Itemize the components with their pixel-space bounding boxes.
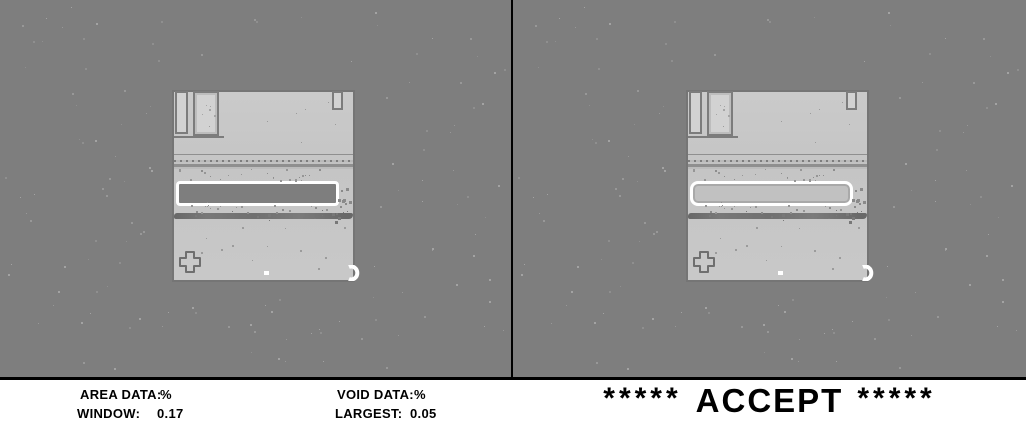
noise-speckle — [467, 196, 469, 198]
noise-speckle — [33, 41, 35, 43]
noise-speckle — [911, 335, 912, 336]
noise-speckle — [432, 250, 433, 251]
noise-speckle — [207, 206, 208, 207]
noise-speckle — [788, 205, 790, 207]
noise-speckle — [547, 194, 548, 195]
noise-speckle — [828, 218, 829, 219]
noise-speckle — [53, 305, 54, 306]
noise-speckle — [620, 286, 621, 287]
noise-speckle — [852, 217, 855, 220]
noise-speckle — [855, 190, 857, 192]
noise-speckle — [983, 38, 985, 40]
noise-speckle — [986, 107, 988, 109]
noise-speckle — [276, 212, 278, 214]
noise-speckle — [860, 188, 863, 191]
noise-speckle — [299, 177, 300, 178]
noise-speckle — [642, 327, 644, 329]
noise-speckle — [210, 176, 211, 177]
noise-speckle — [750, 207, 751, 208]
noise-speckle — [457, 204, 458, 205]
noise-speckle — [765, 169, 766, 170]
noise-speckle — [671, 60, 673, 62]
noise-speckle — [719, 218, 720, 219]
noise-speckle — [521, 274, 523, 276]
noise-speckle — [571, 291, 573, 293]
noise-speckle — [796, 209, 798, 211]
noise-speckle — [305, 109, 306, 110]
noise-speckle — [285, 228, 286, 229]
noise-speckle — [742, 175, 743, 176]
noise-speckle — [503, 330, 504, 331]
noise-speckle — [285, 361, 286, 362]
noise-speckle — [810, 113, 811, 114]
noise-speckle — [720, 238, 721, 239]
noise-speckle — [693, 169, 695, 171]
noise-speckle — [20, 197, 21, 198]
noise-speckle — [1002, 301, 1004, 303]
noise-speckle — [1017, 69, 1019, 71]
noise-speckle — [220, 179, 221, 180]
largest-label: LARGEST: — [335, 406, 402, 421]
noise-speckle — [722, 205, 723, 206]
noise-speckle — [209, 126, 210, 127]
noise-speckle — [829, 207, 831, 209]
noise-speckle — [335, 221, 338, 224]
result-stars-right: ***** — [857, 389, 935, 409]
noise-speckle — [85, 68, 87, 70]
noise-speckle — [423, 149, 425, 151]
noise-speckle — [485, 217, 486, 218]
noise-speckle — [303, 217, 305, 219]
noise-speckle — [377, 25, 378, 26]
noise-speckle — [79, 139, 80, 140]
noise-speckle — [205, 218, 206, 219]
noise-speckle — [829, 218, 830, 219]
noise-speckle — [799, 339, 800, 340]
noise-speckle — [939, 130, 941, 132]
noise-speckle — [936, 149, 938, 151]
noise-speckle — [256, 21, 258, 23]
noise-speckle — [58, 291, 60, 293]
component-groove-band — [688, 154, 867, 169]
noise-speckle — [470, 38, 472, 40]
noise-speckle — [615, 188, 617, 190]
noise-speckle — [460, 82, 462, 84]
noise-speckle — [969, 284, 971, 286]
noise-speckle — [208, 205, 209, 206]
noise-speckle — [790, 212, 792, 214]
noise-speckle — [129, 327, 131, 329]
noise-speckle — [386, 97, 388, 99]
noise-speckle — [398, 335, 399, 336]
noise-speckle — [453, 170, 454, 171]
noise-speckle — [874, 338, 876, 340]
area-data-value: % — [160, 387, 172, 402]
noise-speckle — [1011, 185, 1013, 187]
noise-speckle — [769, 21, 771, 23]
noise-speckle — [825, 206, 826, 207]
noise-speckle — [269, 220, 270, 221]
noise-speckle — [473, 107, 475, 109]
noise-speckle — [477, 56, 478, 57]
noise-speckle — [162, 326, 163, 327]
noise-speckle — [899, 97, 901, 99]
noise-speckle — [228, 326, 230, 328]
noise-speckle — [781, 173, 782, 174]
noise-speckle — [124, 181, 125, 182]
noise-speckle — [341, 190, 343, 192]
noise-speckle — [803, 179, 805, 181]
noise-speckle — [296, 113, 297, 114]
noise-speckle — [286, 339, 287, 340]
noise-speckle — [823, 175, 824, 176]
noise-speckle — [794, 180, 796, 182]
noise-speckle — [214, 115, 216, 117]
noise-speckle — [755, 174, 756, 175]
noise-speckle — [81, 322, 83, 324]
noise-speckle — [850, 213, 852, 215]
noise-speckle — [83, 362, 85, 364]
noise-speckle — [190, 179, 192, 181]
noise-speckle — [322, 210, 323, 211]
noise-speckle — [119, 262, 121, 264]
noise-speckle — [8, 274, 10, 276]
noise-speckle — [392, 163, 394, 165]
noise-speckle — [781, 246, 782, 247]
panel-void-view — [513, 0, 1026, 377]
noise-speckle — [787, 178, 788, 179]
noise-speckle — [734, 206, 735, 207]
noise-speckle — [911, 190, 912, 191]
noise-speckle — [196, 211, 198, 213]
noise-speckle — [559, 18, 560, 19]
noise-speckle — [201, 212, 203, 214]
noise-speckle — [195, 215, 197, 217]
component-groove-band — [174, 154, 353, 169]
noise-speckle — [322, 215, 323, 216]
noise-speckle — [998, 217, 999, 218]
result-text: ACCEPT — [696, 382, 844, 420]
noise-speckle — [945, 250, 946, 251]
noise-speckle — [886, 297, 887, 298]
noise-speckle — [257, 216, 259, 218]
noise-speckle — [83, 38, 85, 40]
noise-speckle — [746, 211, 747, 212]
noise-speckle — [724, 106, 725, 107]
noise-speckle — [34, 194, 35, 195]
noise-speckle — [210, 208, 211, 209]
noise-speckle — [905, 163, 907, 165]
noise-speckle — [319, 169, 321, 171]
noise-speckle — [207, 202, 208, 203]
noise-speckle — [232, 245, 234, 247]
noise-speckle — [489, 279, 491, 281]
noise-speckle — [836, 210, 837, 211]
noise-speckle — [72, 93, 74, 95]
noise-speckle — [201, 252, 203, 254]
noise-speckle — [338, 217, 341, 220]
noise-speckle — [375, 12, 377, 14]
noise-speckle — [592, 139, 593, 140]
status-bar: AREA DATA: % WINDOW: 0.17 VOID DATA: % L… — [0, 377, 1026, 426]
noise-speckle — [766, 260, 767, 261]
noise-speckle — [663, 106, 664, 107]
noise-speckle — [115, 156, 116, 157]
noise-speckle — [716, 114, 717, 115]
noise-speckle — [504, 69, 506, 71]
noise-speckle — [566, 305, 567, 306]
noise-speckle — [598, 68, 600, 70]
noise-speckle — [335, 124, 336, 125]
noise-speckle — [64, 266, 66, 268]
component-pad-large — [707, 91, 733, 136]
noise-speckle — [603, 313, 604, 314]
noise-speckle — [854, 206, 856, 208]
noise-speckle — [342, 200, 345, 203]
noise-speckle — [852, 321, 853, 322]
noise-speckle — [361, 338, 363, 340]
noise-speckle — [761, 212, 763, 214]
noise-speckle — [191, 205, 193, 207]
noise-speckle — [840, 209, 842, 211]
noise-speckle — [990, 56, 991, 57]
noise-speckle — [139, 318, 141, 320]
noise-speckle — [265, 305, 266, 306]
noise-speckle — [280, 180, 282, 182]
noise-speckle — [632, 262, 634, 264]
noise-speckle — [849, 221, 852, 224]
noise-speckle — [675, 326, 676, 327]
noise-speckle — [254, 331, 256, 333]
noise-speckle — [152, 43, 154, 45]
noise-speckle — [351, 61, 352, 62]
noise-speckle — [456, 284, 458, 286]
noise-speckle — [857, 212, 858, 213]
noise-speckle — [637, 90, 639, 92]
noise-speckle — [124, 90, 126, 92]
noise-speckle — [945, 38, 946, 39]
noise-speckle — [489, 301, 491, 303]
noise-speckle — [1002, 279, 1004, 281]
noise-speckle — [533, 197, 534, 198]
noise-speckle — [634, 124, 635, 125]
white-dot — [778, 271, 783, 275]
component-pin — [332, 91, 343, 110]
noise-speckle — [375, 319, 377, 321]
noise-speckle — [839, 257, 841, 259]
noise-speckle — [784, 311, 786, 313]
noise-speckle — [274, 205, 276, 207]
measurement-readout: AREA DATA: % WINDOW: 0.17 VOID DATA: % L… — [0, 380, 511, 426]
noise-speckle — [708, 312, 710, 314]
noise-speckle — [935, 180, 936, 181]
noise-speckle — [819, 109, 820, 110]
component-pad-small — [175, 91, 188, 134]
noise-speckle — [674, 21, 676, 23]
noise-speckle — [402, 292, 403, 293]
noise-speckle — [88, 259, 89, 260]
noise-speckle — [858, 227, 860, 229]
void-data-value: % — [414, 387, 426, 402]
noise-speckle — [704, 179, 706, 181]
noise-speckle — [5, 177, 7, 179]
noise-speckle — [62, 27, 63, 28]
noise-speckle — [146, 113, 147, 114]
noise-speckle — [888, 12, 890, 14]
noise-speckle — [319, 329, 320, 330]
noise-speckle — [107, 286, 108, 287]
noise-speckle — [809, 179, 811, 181]
noise-speckle — [937, 316, 939, 318]
noise-speckle — [852, 199, 855, 202]
noise-speckle — [710, 211, 712, 213]
noise-speckle — [301, 180, 302, 181]
noise-speckle — [205, 206, 206, 207]
noise-speckle — [482, 103, 484, 105]
fiducial-arc-mark — [346, 265, 360, 281]
noise-speckle — [473, 255, 475, 257]
noise-speckle — [723, 109, 725, 111]
noise-speckle — [721, 202, 722, 203]
noise-speckle — [217, 208, 219, 210]
noise-speckle — [332, 213, 335, 216]
noise-speckle — [656, 231, 658, 233]
noise-speckle — [279, 299, 281, 301]
noise-speckle — [102, 188, 104, 190]
pad-divider-line — [688, 136, 738, 138]
noise-speckle — [705, 307, 707, 309]
noise-speckle — [46, 18, 47, 19]
noise-speckle — [551, 323, 552, 324]
noise-speckle — [518, 177, 520, 179]
noise-speckle — [126, 241, 127, 242]
component-pad-large — [193, 91, 219, 136]
noise-speckle — [665, 43, 667, 45]
noise-speckle — [76, 105, 77, 106]
noise-speckle — [929, 53, 931, 55]
noise-speckle — [386, 367, 388, 369]
noise-speckle — [323, 361, 324, 362]
noise-speckle — [662, 167, 664, 169]
noise-speckle — [945, 248, 947, 250]
noise-speckle — [286, 169, 288, 171]
noise-speckle — [637, 181, 638, 182]
noise-speckle — [314, 218, 315, 219]
noise-speckle — [778, 305, 779, 306]
noise-speckle — [755, 206, 757, 208]
component-pin — [846, 91, 857, 110]
noise-speckle — [681, 312, 682, 313]
noise-speckle — [131, 222, 133, 224]
noise-speckle — [714, 54, 716, 56]
inspection-window — [690, 181, 853, 206]
noise-speckle — [90, 313, 91, 314]
noise-speckle — [206, 105, 207, 106]
noise-speckle — [627, 368, 629, 370]
noise-speckle — [289, 179, 291, 181]
inspection-screen: AREA DATA: % WINDOW: 0.17 VOID DATA: % L… — [0, 0, 1026, 426]
noise-speckle — [311, 206, 312, 207]
noise-speckle — [594, 322, 596, 324]
noise-speckle — [589, 105, 590, 106]
noise-speckle — [328, 102, 329, 103]
noise-speckle — [746, 245, 748, 247]
noise-speckle — [915, 292, 916, 293]
noise-speckle — [731, 208, 733, 210]
noise-speckle — [800, 169, 802, 171]
result-banner: ***** ACCEPT ***** — [513, 380, 1026, 426]
noise-speckle — [659, 113, 660, 114]
noise-speckle — [715, 170, 717, 172]
inspection-window — [176, 181, 339, 206]
noise-speckle — [195, 312, 197, 314]
noise-speckle — [970, 204, 971, 205]
noise-speckle — [347, 211, 348, 212]
noise-speckle — [709, 215, 711, 217]
noise-speckle — [814, 17, 815, 18]
noise-speckle — [424, 316, 426, 318]
noise-speckle — [832, 268, 834, 270]
noise-speckle — [724, 176, 725, 177]
noise-speckle — [846, 213, 849, 216]
noise-speckle — [1007, 72, 1009, 74]
noise-speckle — [475, 234, 476, 235]
noise-speckle — [664, 170, 666, 172]
noise-speckle — [963, 132, 964, 133]
noise-speckle — [11, 264, 12, 265]
noise-speckle — [735, 249, 737, 251]
noise-speckle — [409, 82, 410, 83]
noise-speckle — [967, 125, 968, 126]
noise-speckle — [596, 38, 598, 40]
noise-speckle — [346, 188, 349, 191]
noise-speckle — [267, 173, 268, 174]
noise-speckle — [899, 367, 901, 369]
noise-speckle — [432, 248, 434, 250]
noise-speckle — [201, 54, 203, 56]
noise-speckle — [179, 169, 181, 171]
noise-speckle — [340, 206, 342, 208]
noise-speckle — [236, 207, 237, 208]
noise-speckle — [756, 227, 758, 229]
noise-speckle — [305, 175, 306, 176]
noise-speckle — [494, 72, 496, 74]
noise-speckle — [622, 178, 624, 180]
noise-speckle — [628, 156, 629, 157]
noise-speckle — [596, 362, 598, 364]
noise-speckle — [543, 220, 545, 222]
noise-speckle — [325, 257, 327, 259]
noise-speckle — [890, 25, 891, 26]
noise-speckle — [42, 41, 43, 42]
noise-speckle — [221, 249, 223, 251]
noise-speckle — [301, 17, 302, 18]
noise-speckle — [232, 211, 233, 212]
noise-speckle — [734, 179, 735, 180]
noise-speckle — [815, 142, 816, 143]
noise-speckle — [644, 222, 646, 224]
noise-speckle — [922, 82, 923, 83]
noise-speckle — [209, 109, 211, 111]
noise-speckle — [705, 205, 707, 207]
noise-speckle — [228, 175, 229, 176]
noise-speckle — [815, 180, 816, 181]
noise-speckle — [764, 352, 765, 353]
noise-speckle — [320, 332, 322, 334]
noise-speckle — [300, 250, 302, 252]
noise-speckle — [803, 210, 805, 212]
noise-speckle — [22, 25, 24, 27]
